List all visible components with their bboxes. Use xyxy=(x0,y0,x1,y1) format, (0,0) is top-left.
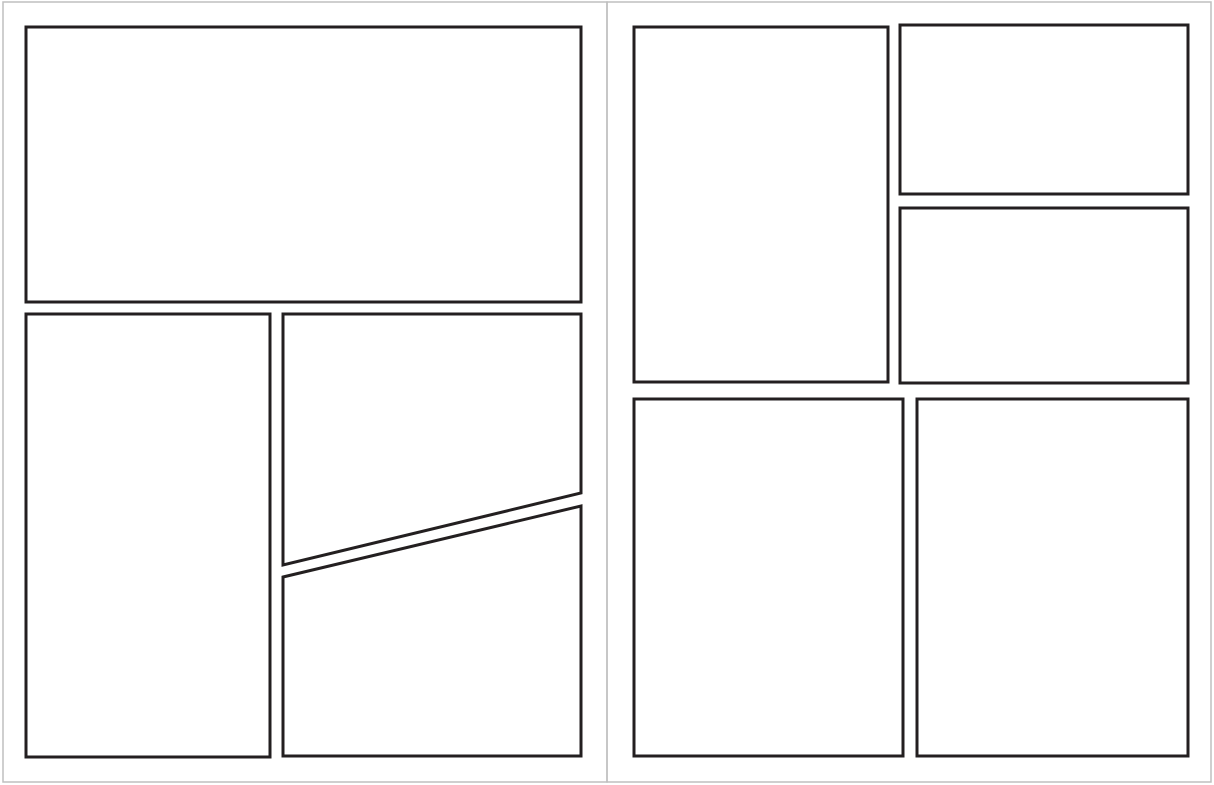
panel-8-bottom-left xyxy=(634,399,903,756)
panel-1-wide-top xyxy=(26,27,581,302)
panel-layout-svg xyxy=(0,0,1214,785)
panel-2-tall-left xyxy=(26,314,270,757)
panel-5-tall-top-left xyxy=(634,27,888,382)
panel-6-top-right-upper xyxy=(900,25,1188,194)
panel-7-top-right-lower xyxy=(900,208,1188,383)
comic-template-spread xyxy=(0,0,1214,785)
panel-9-bottom-right xyxy=(917,399,1188,756)
